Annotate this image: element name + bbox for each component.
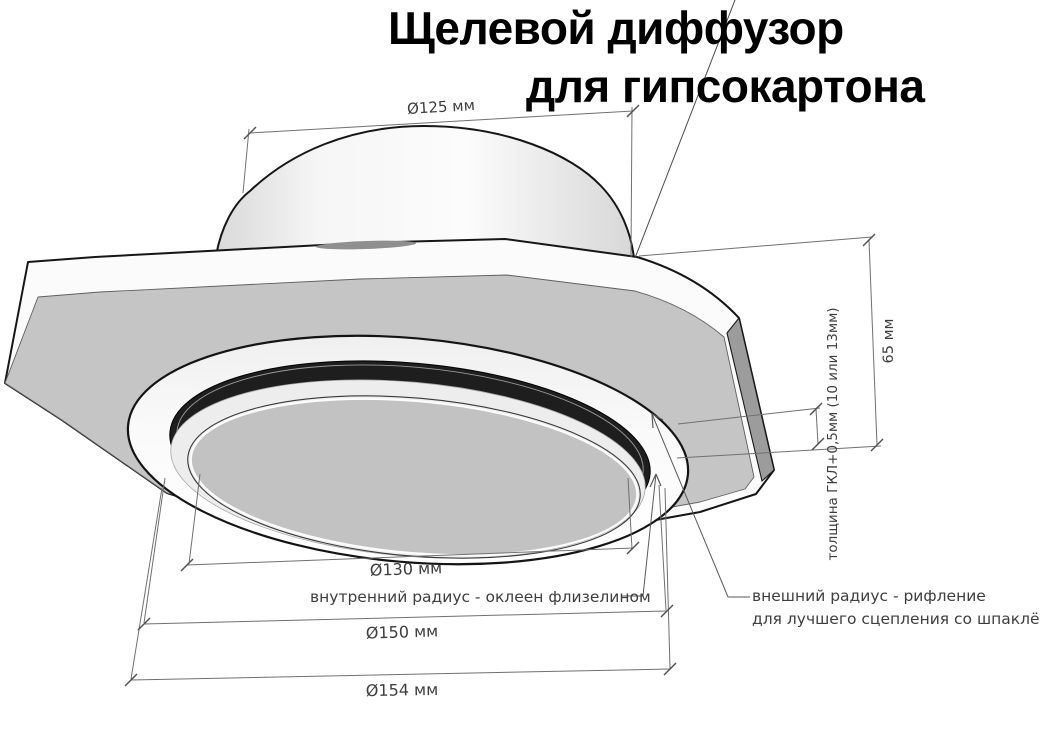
page-title-line1: Щелевой диффузор [388,4,844,52]
technical-drawing-canvas: Щелевой диффузор для гипсокартона Ø125 м… [0,0,1040,729]
dim-inner-diameter-label: Ø130 мм [370,558,443,580]
annotation-outer-radius: внешний радиус - рифление для лучшего сц… [752,585,1040,631]
ext-line [639,237,872,256]
dim-line [869,240,877,445]
dim-line [131,669,670,680]
page-title-line2: для гипсокартона [526,62,924,110]
dim-board-thickness-label: толщина ГКЛ+0,5мм (10 или 13мм) [825,307,841,560]
annotation-outer-radius-line1: внешний радиус - рифление [752,585,1040,608]
dim-flange-diameter-label: Ø150 мм [366,621,439,642]
duct-collar-body [216,126,634,258]
dim-outer-diameter-label: Ø154 мм [366,680,439,700]
annotation-outer-radius-line2: для лучшего сцепления со шпаклёвкой [752,608,1040,631]
dim-line [816,409,818,444]
ext-line [631,107,632,257]
annotation-inner-radius: внутренний радиус - оклеен флизелином [310,588,651,606]
duct-collar [216,126,634,258]
ext-line [131,488,162,679]
ext-line [144,478,165,623]
dim-height-label: 65 мм [881,319,897,364]
